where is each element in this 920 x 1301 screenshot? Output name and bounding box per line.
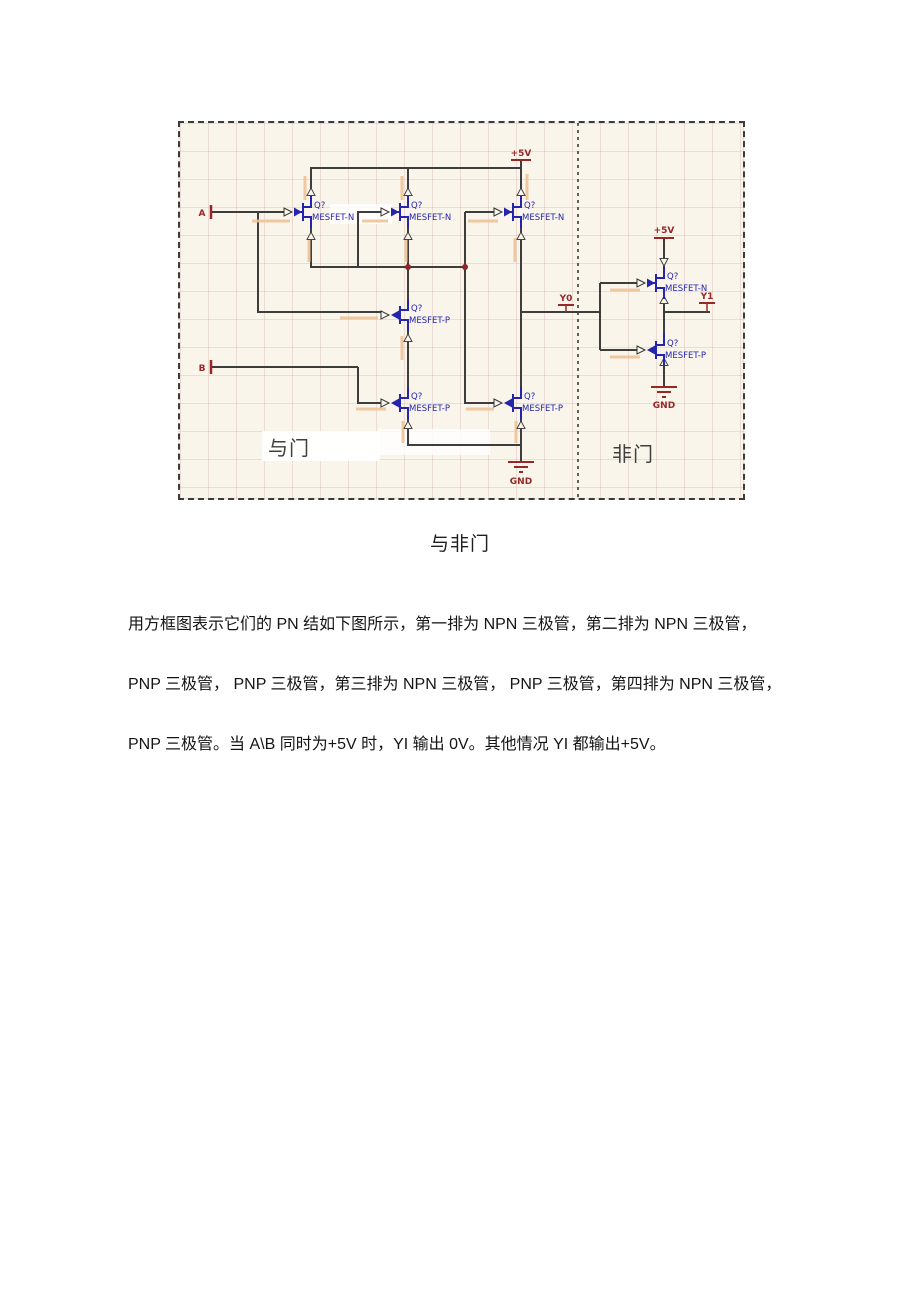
circuit-schematic: Q? MESFET-N Q? MESFET-N Q? MESFET-N Q? M… bbox=[0, 0, 920, 1301]
figure-caption: 与非门 bbox=[0, 529, 920, 556]
watermark-patch bbox=[378, 429, 490, 455]
gate-arrow-icon bbox=[391, 208, 399, 217]
transistor-designator: Q? bbox=[524, 201, 535, 211]
net-y0: Y0 bbox=[558, 294, 574, 312]
net-y0-label: Y0 bbox=[559, 294, 573, 304]
gate-arrow-icon bbox=[391, 399, 399, 408]
pin-arrow-icons bbox=[307, 188, 668, 429]
junction-dot-icon bbox=[462, 264, 468, 270]
port-b: B bbox=[199, 360, 211, 374]
transistor-type: MESFET-P bbox=[522, 404, 563, 414]
vcc-not-gate: +5V bbox=[654, 226, 675, 238]
transistor-q8: Q? MESFET-P bbox=[637, 334, 706, 366]
transistor-type: MESFET-P bbox=[409, 316, 450, 326]
port-a-label: A bbox=[199, 209, 206, 219]
ground-icon bbox=[508, 462, 534, 472]
not-gate-wires bbox=[600, 238, 710, 387]
gate-arrow-icon bbox=[504, 208, 512, 217]
gnd-label: GND bbox=[653, 401, 675, 411]
transistor-q4: Q? MESFET-P bbox=[381, 299, 450, 331]
gate-arrow-icon bbox=[381, 311, 389, 319]
transistor-type: MESFET-N bbox=[522, 213, 564, 223]
ground-icon bbox=[651, 387, 677, 397]
transistor-q6: Q? MESFET-P bbox=[494, 387, 563, 419]
transistor-type: MESFET-P bbox=[665, 351, 706, 361]
and-gate-section-label: 与门 bbox=[268, 437, 310, 460]
gate-arrow-icon bbox=[391, 311, 399, 320]
net-y1-label: Y1 bbox=[700, 292, 714, 302]
transistor-designator: Q? bbox=[411, 201, 422, 211]
gnd-not-gate: GND bbox=[651, 387, 677, 411]
transistor-designator: Q? bbox=[667, 339, 678, 349]
net-y1: Y1 bbox=[699, 292, 715, 312]
gate-arrow-icon bbox=[494, 399, 502, 407]
gate-arrow-icon bbox=[381, 399, 389, 407]
junction-dot-icon bbox=[405, 264, 411, 270]
transistor-designator: Q? bbox=[411, 392, 422, 402]
gate-arrow-icon bbox=[504, 399, 512, 408]
transistor-type: MESFET-P bbox=[409, 404, 450, 414]
transistor-designator: Q? bbox=[411, 304, 422, 314]
gate-arrow-icon bbox=[294, 208, 302, 217]
vcc-label: +5V bbox=[511, 149, 532, 159]
gnd-label: GND bbox=[510, 477, 532, 487]
transistor-type: MESFET-N bbox=[312, 213, 354, 223]
port-b-label: B bbox=[199, 364, 206, 374]
gate-arrow-icon bbox=[637, 346, 645, 354]
paragraph-line: PNP 三极管， PNP 三极管，第三排为 NPN 三极管， PNP 三极管，第… bbox=[128, 670, 781, 694]
transistor-designator: Q? bbox=[667, 272, 678, 282]
not-gate-section-label: 非门 bbox=[612, 443, 654, 466]
transistor-designator: Q? bbox=[524, 392, 535, 402]
gate-arrow-icon bbox=[637, 279, 645, 287]
gate-arrow-icon bbox=[647, 346, 655, 355]
transistor-type: MESFET-N bbox=[409, 213, 451, 223]
transistor-designator: Q? bbox=[314, 201, 325, 211]
transistor-q3: Q? MESFET-N bbox=[494, 196, 564, 228]
gnd-and-gate: GND bbox=[508, 462, 534, 487]
transistor-q7: Q? MESFET-N bbox=[637, 267, 707, 299]
paragraph-line: PNP 三极管。当 A\B 同时为+5V 时，YI 输出 0V。其他情况 YI … bbox=[128, 730, 666, 754]
paragraph-line: 用方框图表示它们的 PN 结如下图所示，第一排为 NPN 三极管，第二排为 NP… bbox=[128, 610, 756, 634]
gate-arrow-icon bbox=[284, 208, 292, 216]
transistor-q5: Q? MESFET-P bbox=[381, 387, 450, 419]
port-a: A bbox=[199, 205, 211, 219]
vcc-label: +5V bbox=[654, 226, 675, 236]
gate-arrow-icon bbox=[647, 279, 655, 288]
vcc-and-gate: +5V bbox=[511, 149, 532, 160]
gate-arrow-icon bbox=[494, 208, 502, 216]
